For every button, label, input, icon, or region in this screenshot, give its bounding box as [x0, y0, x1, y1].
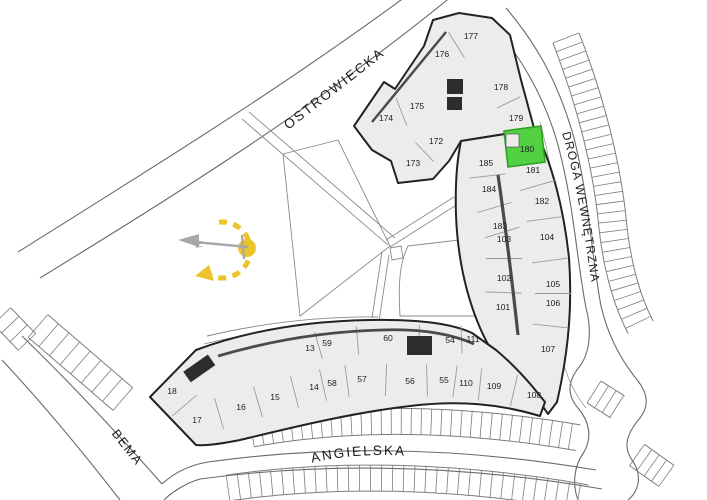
parking-stall-line [549, 420, 553, 446]
unit-label-16[interactable]: 16 [236, 402, 246, 412]
unit-label-183[interactable]: 183 [493, 221, 508, 231]
parking-stall-line [113, 388, 133, 411]
parking-stall-line [92, 369, 112, 392]
unit-label-182[interactable]: 182 [535, 196, 550, 206]
unit-label-101[interactable]: 101 [496, 302, 511, 312]
parking-stall-line [371, 409, 372, 435]
unit-180-notch [506, 134, 519, 147]
parking-stall-line [71, 351, 91, 374]
parking-stall-line [592, 172, 620, 177]
parking-stall-line [609, 274, 636, 281]
parking-stall-line [0, 308, 11, 325]
unit-label-180[interactable]: 180 [520, 144, 535, 154]
unit-label-111[interactable]: 111 [466, 334, 479, 344]
parking-stall-line [248, 472, 251, 498]
unit-label-177[interactable]: 177 [464, 31, 479, 41]
parking-stall-line [519, 416, 522, 442]
parking-stall-line [559, 422, 563, 448]
parking-stall-line [533, 477, 537, 500]
parking-stall-line [431, 409, 432, 435]
unit-label-59[interactable]: 59 [322, 338, 332, 348]
parking-stall-line [595, 191, 623, 195]
street-label-bema: BEMA [109, 427, 146, 468]
parking-band-edge [28, 337, 113, 410]
unit-label-175[interactable]: 175 [410, 101, 425, 111]
parking-stall-line [392, 465, 393, 491]
parking-stall-line [49, 333, 69, 356]
parking-stall-line [596, 201, 624, 205]
parking-stall-line [490, 413, 492, 439]
street-label-angielska-text: ANGIELSKA [310, 443, 407, 466]
parking-stall-line [450, 410, 451, 436]
parking-stall-line [522, 475, 525, 500]
parking-stall-line [512, 474, 515, 500]
parking-stall-line [337, 466, 338, 492]
parking-stall-line [81, 360, 101, 383]
parking-stall-line [560, 51, 586, 61]
parking-stall-line [259, 471, 262, 497]
parking-stall-line [566, 69, 593, 78]
parking-stall-line [590, 163, 617, 169]
parking-stall-line [500, 414, 503, 440]
parking-stall-line [544, 478, 548, 500]
parking-stall-line [599, 229, 627, 232]
parking-stall-line [436, 467, 438, 493]
parking-stall-line [586, 144, 613, 150]
unit-label-172[interactable]: 172 [429, 136, 444, 146]
parking-stall-line [480, 412, 482, 438]
parking-stall-line [348, 465, 349, 491]
parking-band-edge [48, 315, 133, 388]
road-join-west-1 [162, 462, 208, 484]
parking-stall-line [237, 474, 240, 500]
parking-stall-line [490, 472, 493, 498]
parking-stall-line [598, 220, 626, 223]
unit-label-103[interactable]: 103 [497, 234, 512, 244]
parking-stall-line [529, 418, 532, 444]
unit-label-60[interactable]: 60 [383, 333, 393, 343]
parking-stall-line [579, 115, 606, 122]
unit-label-110[interactable]: 110 [459, 378, 473, 388]
unit-label-104[interactable]: 104 [540, 232, 555, 242]
parking-stall-line [39, 324, 59, 347]
parking-stall-line [577, 106, 604, 114]
parking-stall-line [601, 239, 629, 243]
parking-stall-line [595, 386, 609, 408]
parking-stall-line [304, 467, 306, 493]
parking-stall-line [421, 409, 422, 435]
unit-label-17[interactable]: 17 [192, 415, 202, 425]
parking-stall-line [553, 33, 579, 43]
parking-stall-line [621, 308, 647, 319]
unit-label-107[interactable]: 107 [541, 344, 556, 354]
unit-label-102[interactable]: 102 [497, 273, 512, 283]
parking-stall-line [501, 473, 504, 499]
parking-stall-line [610, 395, 624, 417]
parking-stall-line [574, 97, 601, 105]
parking-stall-line [637, 450, 652, 471]
parking-stall-line [270, 470, 273, 496]
unit-label-14[interactable]: 14 [309, 382, 319, 392]
parking-stall-line [602, 248, 630, 253]
footpath-east-1 [390, 204, 458, 247]
unit-label-185[interactable]: 185 [479, 158, 494, 168]
parking-stall-line [555, 480, 559, 500]
road-join-west-2 [164, 479, 200, 500]
unit-label-57[interactable]: 57 [357, 374, 367, 384]
street-label-angielska: ANGIELSKA [310, 443, 407, 466]
parking-stall-line [582, 125, 609, 132]
parking-band-edge [226, 465, 588, 485]
unit-label-15[interactable]: 15 [270, 392, 280, 402]
unit-label-176[interactable]: 176 [435, 49, 450, 59]
parking-stall-line [539, 419, 543, 445]
parking-stall-line [659, 465, 674, 486]
parking-stall-line [593, 182, 621, 187]
parking-stall-line [479, 470, 481, 496]
unit-label-18[interactable]: 18 [167, 386, 177, 396]
parking-stall-line [441, 410, 442, 436]
parking-stall-line [326, 466, 327, 492]
parking-stall-line [315, 467, 316, 493]
parking-stall-line [566, 482, 570, 500]
parking-stall-line [629, 444, 644, 465]
unit-label-105[interactable]: 105 [546, 279, 561, 289]
road-droga-south-east-curve [627, 376, 646, 500]
parking-stall-line [569, 78, 596, 87]
parking-stall-line [282, 469, 284, 495]
parking-stall-line [563, 60, 589, 69]
parking-stall-line [293, 468, 295, 494]
parking-stall-line [606, 265, 633, 271]
parking-stall-line [468, 469, 470, 495]
unit-label-178[interactable]: 178 [494, 82, 509, 92]
parking-stall-line [403, 466, 404, 492]
north-label: N [194, 240, 206, 249]
lawn-plot-left [283, 140, 390, 316]
stair-core-1 [447, 79, 463, 94]
parking-band-edge [601, 381, 625, 396]
road-bema-west-edge [2, 360, 120, 500]
parking-stall-line [626, 316, 651, 328]
parking-stall-line [568, 424, 572, 450]
parking-stall-line [556, 42, 582, 52]
footpath-east-2 [386, 197, 454, 240]
parking-stall-line [60, 342, 80, 365]
parking-stall-line [460, 411, 462, 437]
parking-stall-line [618, 300, 644, 310]
unit-label-179[interactable]: 179 [509, 113, 524, 123]
unit-label-58[interactable]: 58 [327, 378, 337, 388]
parking-stall-line [571, 88, 598, 96]
parking-stall-line [2, 316, 19, 333]
unit-label-54[interactable]: 54 [445, 335, 455, 345]
parking-stall-line [614, 292, 641, 301]
unit-label-173[interactable]: 173 [406, 158, 421, 168]
parking-stall-line [457, 469, 459, 495]
parking-stall-line [587, 381, 601, 403]
parking-band-edge [230, 491, 584, 500]
parking-stall-line [588, 153, 615, 159]
site-plan-map: 1741751761771781791721731801851811841821… [0, 0, 707, 500]
parking-stall-line [510, 415, 513, 441]
parking-stall-line [597, 211, 625, 214]
compass: N [178, 222, 256, 281]
parking-stall-line [103, 379, 123, 402]
unit-label-108[interactable]: 108 [527, 390, 542, 400]
parking-stall-line [447, 468, 449, 494]
sun-arrowhead-icon [195, 265, 214, 281]
unit-label-181[interactable]: 181 [526, 165, 541, 175]
parking-stall-line [425, 466, 426, 492]
lawn-plot-bump [390, 246, 403, 260]
parking-stall-line [584, 134, 611, 141]
parking-band-edge [0, 324, 18, 350]
stair-core-3 [407, 336, 432, 355]
unit-label-184[interactable]: 184 [482, 184, 497, 194]
parking-band-edge [645, 444, 674, 465]
parking-stall-line [28, 315, 48, 338]
parking-stall-line [226, 475, 230, 500]
road-droga-south-west-curve [570, 308, 589, 500]
parking-stall-line [414, 466, 415, 492]
unit-label-174[interactable]: 174 [379, 113, 394, 123]
unit-label-56[interactable]: 56 [405, 376, 415, 386]
parking-stall-line [611, 283, 638, 291]
parking-stall-line [602, 391, 616, 413]
unit-label-106[interactable]: 106 [546, 298, 561, 308]
stair-core-2 [447, 97, 462, 110]
parking-stall-line [644, 455, 659, 476]
parking-stall-line [651, 460, 666, 481]
parking-stall-line [604, 257, 631, 263]
parking-stall-line [470, 411, 472, 437]
site-plan: 1741751761771781791721731801851811841821… [0, 0, 707, 500]
unit-label-55[interactable]: 55 [439, 375, 449, 385]
unit-label-109[interactable]: 109 [487, 381, 502, 391]
unit-label-13[interactable]: 13 [305, 343, 315, 353]
